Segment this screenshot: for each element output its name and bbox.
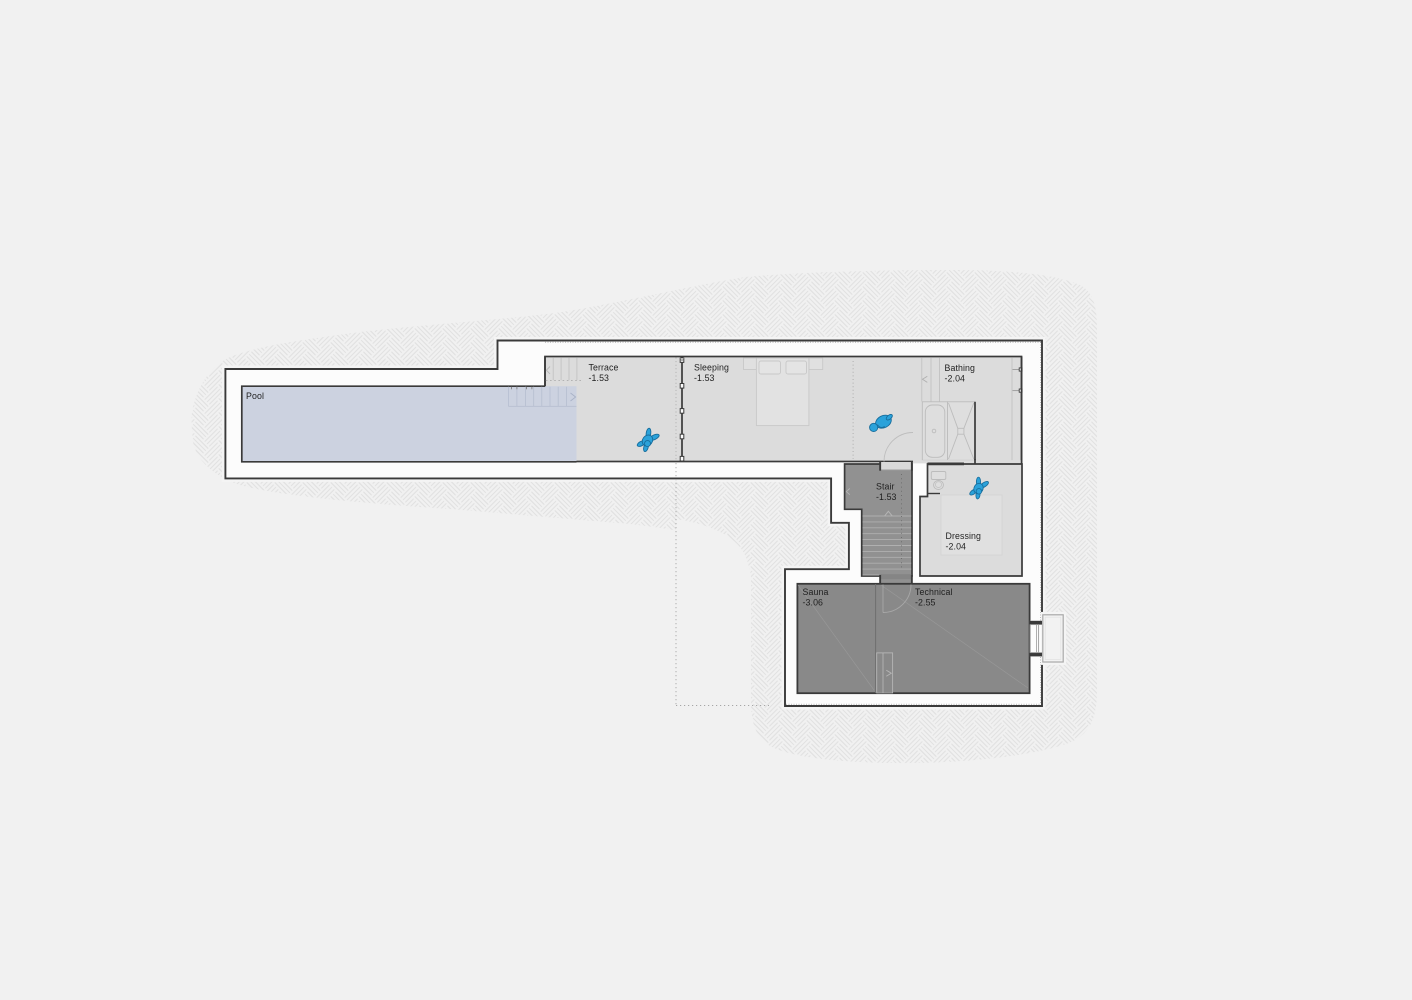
svg-text:Terrace: Terrace (589, 363, 619, 373)
svg-text:-1.53: -1.53 (876, 492, 897, 502)
svg-text:-1.53: -1.53 (694, 373, 715, 383)
svg-text:Pool: Pool (246, 391, 264, 401)
svg-text:-2.04: -2.04 (946, 542, 967, 552)
svg-text:Stair: Stair (876, 482, 895, 492)
svg-text:-1.53: -1.53 (589, 373, 610, 383)
svg-text:Technical: Technical (915, 587, 953, 597)
svg-text:-2.04: -2.04 (945, 373, 966, 383)
svg-text:-2.55: -2.55 (915, 598, 936, 608)
svg-text:Dressing: Dressing (946, 531, 982, 541)
svg-text:Bathing: Bathing (945, 363, 976, 373)
svg-text:Sauna: Sauna (803, 587, 829, 597)
svg-text:Sleeping: Sleeping (694, 363, 729, 373)
svg-text:-3.06: -3.06 (803, 598, 824, 608)
